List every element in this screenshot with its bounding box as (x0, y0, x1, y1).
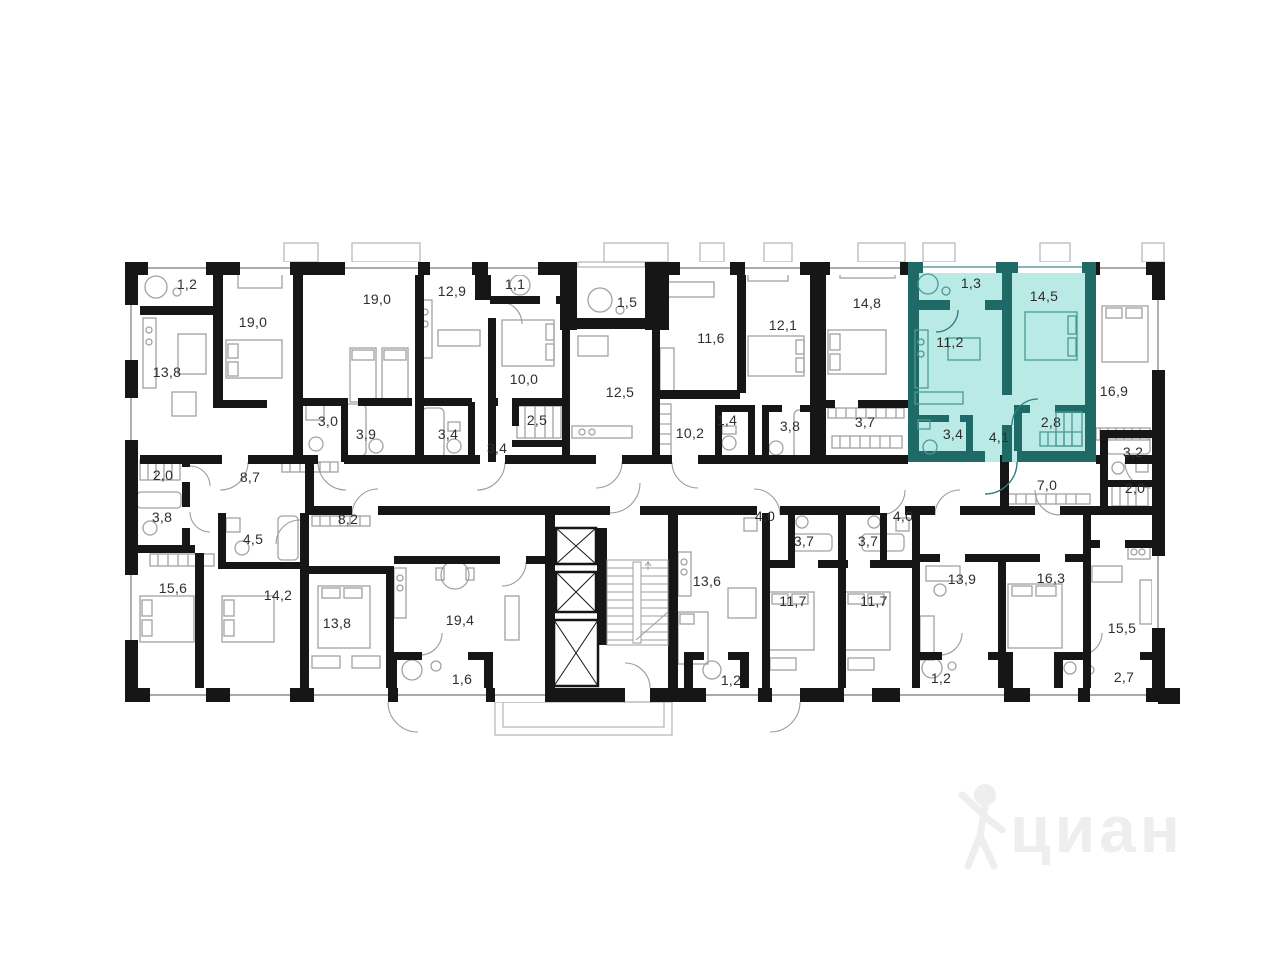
room-area-label: 3,8 (780, 418, 800, 434)
room-area-label: 2,7 (1114, 669, 1134, 685)
watermark-text: циан (1010, 792, 1184, 866)
watermark-logo: циан (962, 784, 1184, 866)
room-area-label: 2,5 (527, 412, 547, 428)
room-area-label: 1,3 (961, 275, 981, 291)
room-area-label: 3,8 (152, 509, 172, 525)
room-area-label: 12,9 (438, 283, 466, 299)
room-area-label: 15,6 (159, 580, 187, 596)
room-area-label: 13,9 (948, 571, 976, 587)
room-area-label: 3,4 (487, 440, 507, 456)
floor-plan-drawing: циан (0, 0, 1280, 960)
room-area-label: 13,8 (323, 615, 351, 631)
room-area-label: 3,0 (318, 413, 338, 429)
room-area-label: 1,2 (177, 276, 197, 292)
room-area-label: 3,4 (943, 426, 963, 442)
room-area-label: 1,2 (721, 672, 741, 688)
room-area-label: 3,7 (794, 533, 814, 549)
room-area-label: 19,4 (446, 612, 474, 628)
room-area-label: 19,0 (363, 291, 391, 307)
room-area-label: 11,6 (697, 330, 724, 346)
room-area-label: 13,8 (153, 364, 181, 380)
room-area-label: 14,2 (264, 587, 292, 603)
floor-plan-page: циан 1,2 19,0 19,0 12,9 1,1 13,8 10,0 1,… (0, 0, 1280, 960)
room-area-label: 16,3 (1037, 570, 1065, 586)
room-area-label: 14,8 (853, 295, 881, 311)
room-area-label: 19,0 (239, 314, 267, 330)
room-area-label: 1,5 (617, 294, 637, 310)
room-area-label: 15,5 (1108, 620, 1136, 636)
room-area-label: 16,9 (1100, 383, 1128, 399)
room-area-label: 3,2 (1123, 444, 1143, 460)
room-area-label: 13,6 (693, 573, 721, 589)
room-area-label: 1,1 (505, 276, 525, 292)
room-area-label: 2,0 (153, 467, 173, 483)
room-area-label: 1,6 (452, 671, 472, 687)
room-area-label: 11,7 (860, 593, 887, 609)
room-area-label: 14,5 (1030, 288, 1058, 304)
room-area-label: 3,7 (855, 414, 875, 430)
elevator-shafts (554, 528, 598, 686)
room-area-label: 2,0 (1125, 480, 1145, 496)
room-area-label: 4,0 (893, 508, 913, 524)
room-area-label: 11,2 (936, 334, 963, 350)
room-area-label: 8,2 (338, 511, 358, 527)
room-area-label: 11,7 (779, 593, 806, 609)
room-area-label: 4,1 (989, 429, 1009, 445)
room-area-label: 10,0 (510, 371, 538, 387)
room-area-label: 12,5 (606, 384, 634, 400)
room-area-label: 3,7 (858, 533, 878, 549)
room-area-label: 8,7 (240, 469, 260, 485)
staircase (607, 560, 668, 645)
room-area-label: 12,1 (769, 317, 797, 333)
room-area-label: 1,4 (717, 412, 737, 428)
room-area-label: 3,9 (356, 426, 376, 442)
room-area-label: 4,5 (243, 531, 263, 547)
room-area-label: 1,2 (931, 670, 951, 686)
room-area-label: 7,0 (1037, 477, 1057, 493)
room-area-label: 4,0 (755, 508, 775, 524)
room-area-label: 2,8 (1041, 414, 1061, 430)
room-area-label: 10,2 (676, 425, 704, 441)
room-area-label: 3,4 (438, 426, 458, 442)
